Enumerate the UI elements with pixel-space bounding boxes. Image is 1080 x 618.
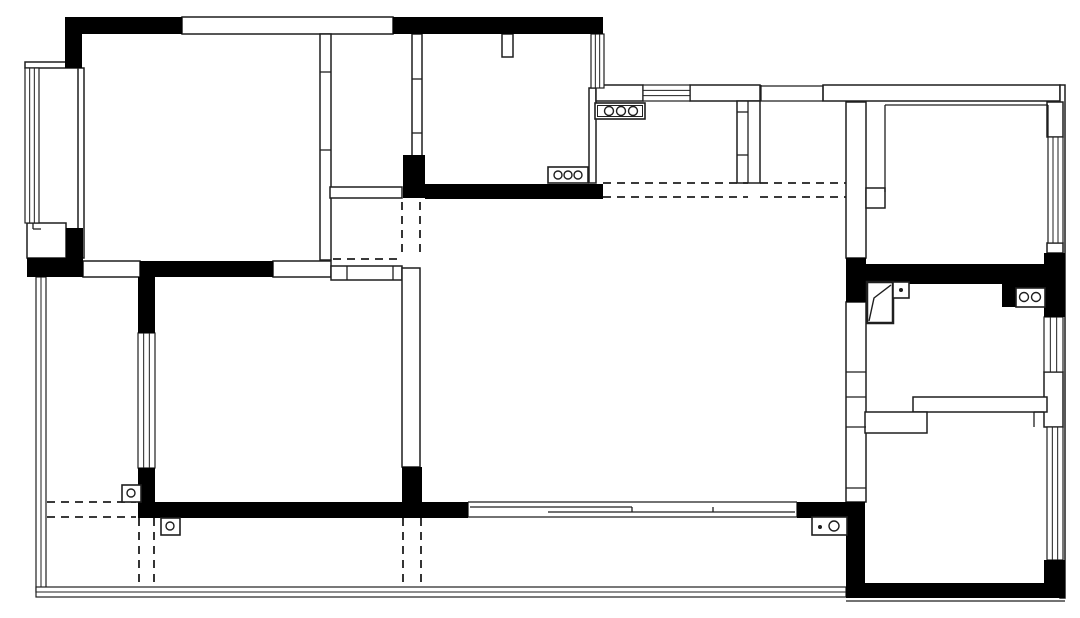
wall-segment <box>913 397 1047 412</box>
solid-wall <box>402 467 422 502</box>
wall-segment <box>331 266 402 280</box>
stove-burners-symbol-circle <box>554 171 562 179</box>
shower-panel-symbol <box>867 282 893 323</box>
wall-segment <box>823 85 1060 101</box>
solid-wall <box>393 17 603 34</box>
solid-wall <box>65 17 182 34</box>
solid-wall <box>1044 560 1065 598</box>
sink-symbol-circle <box>1020 293 1029 302</box>
floor-drain-symbol-circle <box>127 489 135 497</box>
window-symbol <box>25 68 39 223</box>
wall-segment <box>412 34 422 157</box>
solid-wall <box>66 228 83 258</box>
wall-segment <box>320 34 331 260</box>
stove-burners-symbol-circle <box>605 107 614 116</box>
wall-segment <box>1047 243 1063 253</box>
floor-plan <box>0 0 1080 618</box>
solid-wall <box>425 184 603 199</box>
stove-burners-symbol-circle <box>564 171 572 179</box>
wall-segment <box>1047 102 1063 137</box>
solid-wall <box>138 502 468 518</box>
window-symbol <box>643 85 690 101</box>
wall-segment <box>330 187 402 198</box>
floor-drain-symbol-circle <box>166 522 174 530</box>
wall-segment <box>402 268 420 467</box>
solid-wall <box>138 277 155 333</box>
solid-wall <box>863 583 1065 598</box>
window-symbol <box>591 34 604 88</box>
window-symbol <box>1048 137 1063 243</box>
wall-segment <box>273 261 331 277</box>
window-symbol <box>138 333 155 468</box>
floor-plan-canvas <box>0 0 1080 618</box>
solid-wall <box>27 258 83 277</box>
switch-box-symbol-dot <box>899 288 903 292</box>
solid-wall <box>403 155 425 198</box>
stove-burners-symbol-circle <box>617 107 626 116</box>
wall-segment <box>690 85 760 101</box>
window-symbol <box>1047 427 1063 560</box>
wall-segment <box>866 188 885 208</box>
wall-segment <box>846 302 866 502</box>
solid-wall <box>65 34 82 68</box>
wall-segment <box>182 17 393 34</box>
stove-burners-symbol-circle <box>629 107 638 116</box>
floor-drain-symbol-dot <box>818 525 822 529</box>
wall-segment <box>502 34 513 57</box>
sink-symbol-circle <box>1032 293 1041 302</box>
solid-wall <box>140 261 273 277</box>
solid-wall <box>1044 253 1065 317</box>
solid-wall <box>846 502 865 598</box>
wall-segment <box>846 102 866 258</box>
floor-drain-symbol-circle <box>829 521 839 531</box>
wall-segment <box>865 412 927 433</box>
stove-burners-symbol-circle <box>574 171 582 179</box>
wall-segment <box>83 261 140 277</box>
window-symbol <box>1044 317 1063 372</box>
